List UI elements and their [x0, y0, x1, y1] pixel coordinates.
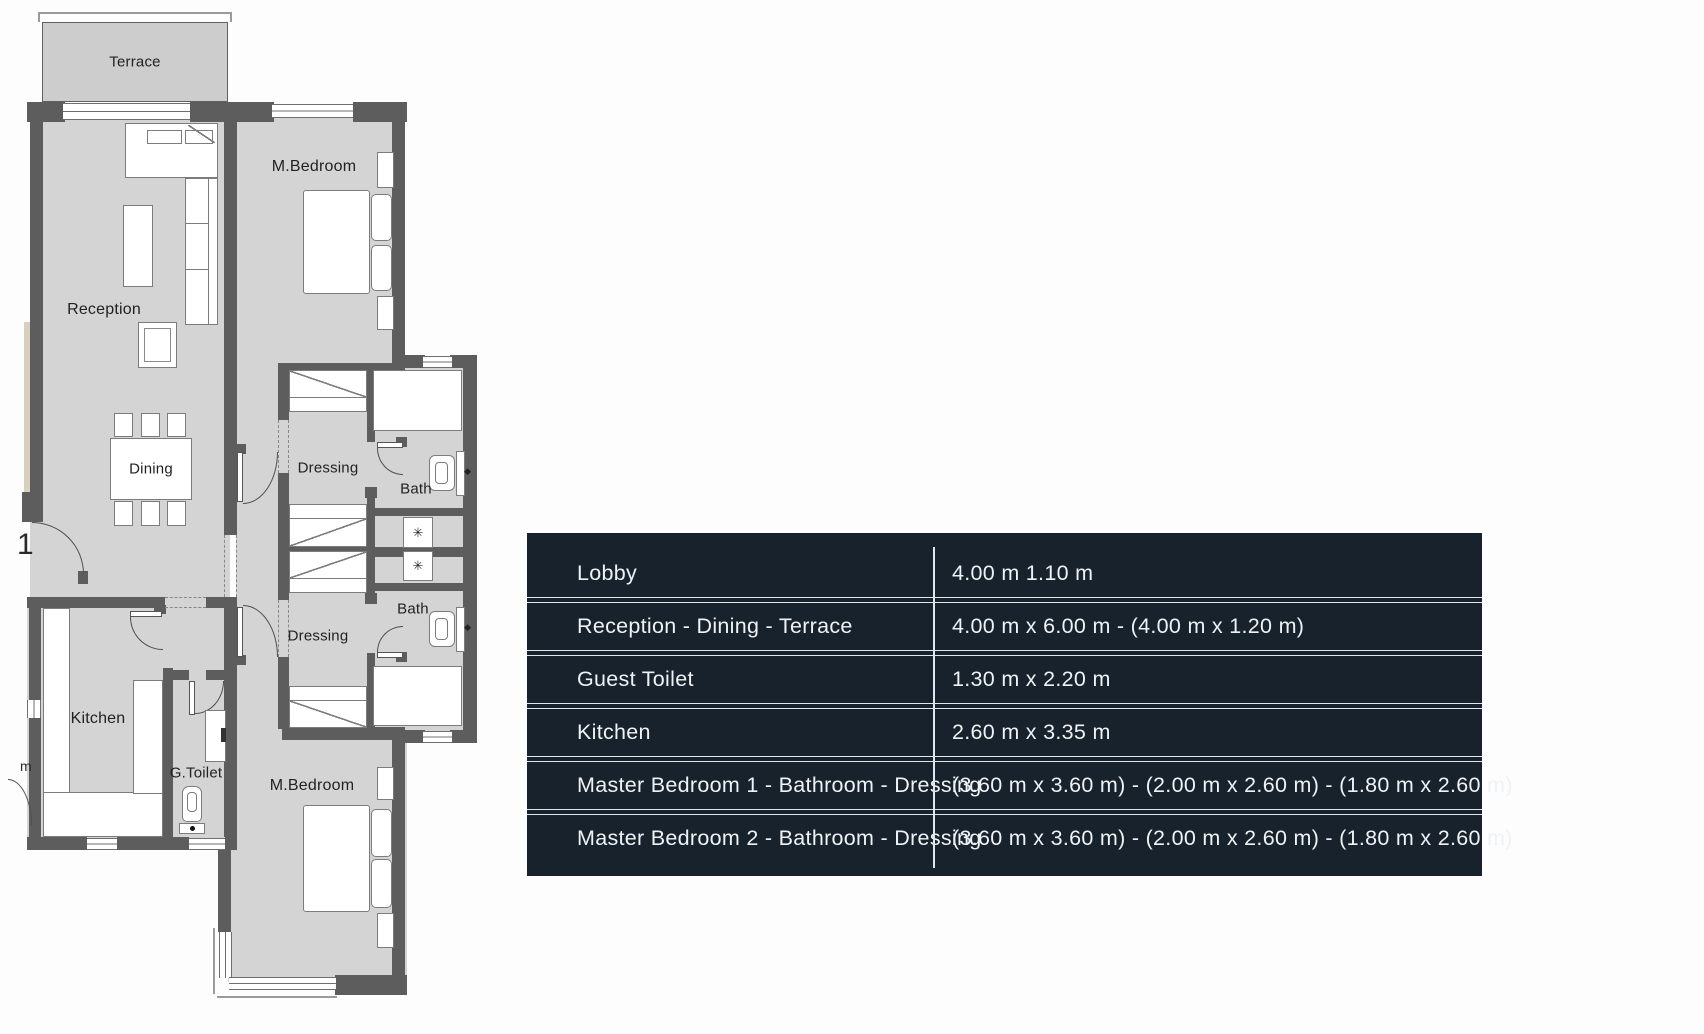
dining-chair	[141, 413, 160, 437]
wall	[27, 837, 87, 850]
wall	[278, 473, 289, 550]
wardrobe	[289, 551, 367, 593]
row-value: (3.60 m x 3.60 m) - (2.00 m x 2.60 m) - …	[933, 826, 1513, 851]
bedroom2-outline	[217, 996, 337, 998]
room-label-dressing-2: Dressing	[288, 628, 349, 645]
wall	[22, 492, 32, 522]
wardrobe	[289, 504, 367, 547]
room-label-dressing-1: Dressing	[298, 460, 359, 477]
window	[189, 838, 225, 850]
wall	[224, 118, 237, 535]
row-label: Master Bedroom 1 - Bathroom - Dressing	[527, 773, 933, 798]
dimensions-table: Lobby4.00 m 1.10 mReception - Dining - T…	[527, 533, 1482, 876]
row-label: Reception - Dining - Terrace	[527, 614, 933, 639]
terrace-outline	[230, 12, 232, 22]
sofa	[185, 178, 218, 325]
door-jamb	[365, 593, 377, 604]
table-row: Kitchen2.60 m x 3.35 m	[527, 709, 1482, 756]
table-row: Reception - Dining - Terrace4.00 m x 6.0…	[527, 603, 1482, 650]
wall	[29, 606, 41, 700]
wall	[335, 975, 407, 995]
wall	[282, 727, 405, 740]
coffee-table	[123, 205, 153, 287]
window	[219, 932, 232, 978]
row-value: 4.00 m 1.10 m	[933, 561, 1093, 586]
nightstand	[377, 913, 394, 948]
bed	[303, 805, 370, 912]
pillow	[371, 809, 392, 857]
floor-plan-page: ✳ ✳ ◆ ◆ Terra	[0, 0, 1704, 1034]
wall	[163, 668, 173, 837]
toilet: ◆	[429, 607, 467, 652]
nightstand	[377, 152, 394, 188]
dining-chair	[167, 413, 186, 437]
window	[423, 731, 452, 743]
dining-chair	[114, 501, 133, 526]
wall	[117, 837, 189, 850]
sink-counter	[373, 370, 462, 431]
nightstand	[377, 296, 394, 330]
kitchen-counter	[43, 792, 163, 837]
row-label: Lobby	[527, 561, 933, 586]
wardrobe	[289, 686, 367, 728]
door-leaf	[377, 652, 403, 658]
wardrobe	[289, 370, 367, 412]
toilet-arrow-icon: ◆	[464, 622, 471, 633]
room-label-master-bedroom-2: M.Bedroom	[270, 777, 355, 795]
bed	[303, 190, 370, 294]
bedroom2-outline	[213, 928, 215, 994]
wall	[218, 848, 231, 932]
terrace-outline	[38, 12, 232, 14]
row-value: 2.60 m x 3.35 m	[933, 720, 1111, 745]
wash-basin	[205, 710, 226, 762]
wall	[400, 730, 425, 743]
room-label-bath-1: Bath	[400, 481, 432, 498]
edge-text-fragment: m	[20, 758, 32, 774]
sofa-cushion	[147, 130, 182, 144]
sofa-corner	[188, 125, 215, 143]
toilet	[179, 786, 205, 834]
window	[229, 977, 336, 990]
wall	[463, 355, 477, 742]
floor-plan: ✳ ✳ ◆ ◆ Terra	[0, 0, 520, 1034]
row-label: Guest Toilet	[527, 667, 933, 692]
toilet-arrow-icon: ◆	[464, 466, 471, 477]
row-value: 4.00 m x 6.00 m - (4.00 m x 1.20 m)	[933, 614, 1304, 639]
wall	[278, 657, 289, 729]
table-row: Master Bedroom 2 - Bathroom - Dressing(3…	[527, 815, 1482, 862]
table-rows: Lobby4.00 m 1.10 mReception - Dining - T…	[527, 550, 1482, 862]
room-label-bath-2: Bath	[397, 601, 429, 618]
wall	[367, 498, 375, 547]
dining-chair	[141, 501, 160, 526]
terrace-outline	[38, 12, 40, 22]
pillow	[371, 194, 392, 241]
window	[423, 356, 452, 368]
dining-chair	[167, 501, 186, 526]
room-label-terrace: Terrace	[109, 54, 160, 71]
row-label: Master Bedroom 2 - Bathroom - Dressing	[527, 826, 933, 851]
room-label-reception: Reception	[67, 301, 141, 319]
window	[87, 838, 117, 850]
column-divider	[933, 547, 935, 868]
edge-text-fragment: 1	[17, 528, 34, 562]
opening-dashed	[165, 597, 206, 608]
table-row: Lobby4.00 m 1.10 m	[527, 550, 1482, 597]
room-label-guest-toilet: G.Toilet	[170, 765, 222, 782]
opening-dashed	[278, 420, 289, 473]
wall	[450, 730, 477, 743]
row-value: 1.30 m x 2.20 m	[933, 667, 1111, 692]
pillow	[371, 245, 392, 291]
wall	[27, 597, 165, 608]
nightstand	[377, 767, 394, 800]
table-row: Guest Toilet1.30 m x 2.20 m	[527, 656, 1482, 703]
shower-icon: ✳	[413, 525, 424, 541]
opening-dashed	[224, 535, 237, 597]
door-jamb	[365, 487, 377, 498]
window	[272, 104, 353, 118]
table-row: Master Bedroom 1 - Bathroom - Dressing(3…	[527, 762, 1482, 809]
wall	[29, 718, 41, 844]
room-label-dining: Dining	[129, 461, 173, 478]
wall	[375, 508, 463, 516]
wall	[173, 670, 189, 680]
wall	[206, 670, 224, 680]
room-label-master-bedroom-1: M.Bedroom	[272, 158, 357, 176]
shower-tray: ✳	[403, 551, 433, 581]
row-label: Kitchen	[527, 720, 933, 745]
window	[63, 103, 190, 120]
wall	[30, 118, 43, 522]
shower-tray: ✳	[403, 517, 433, 548]
room-label-kitchen: Kitchen	[71, 710, 126, 728]
sink-counter	[373, 666, 462, 726]
kitchen-counter	[133, 680, 163, 794]
wall	[206, 597, 237, 608]
window	[27, 700, 41, 718]
wall	[278, 550, 289, 600]
kitchen-counter	[43, 608, 70, 794]
wall	[375, 583, 463, 591]
toilet: ◆	[429, 451, 467, 496]
dining-chair	[114, 413, 133, 437]
row-value: (3.60 m x 3.60 m) - (2.00 m x 2.60 m) - …	[933, 773, 1513, 798]
tv-console	[138, 322, 177, 368]
shower-icon: ✳	[413, 558, 424, 574]
pillow	[371, 859, 392, 908]
